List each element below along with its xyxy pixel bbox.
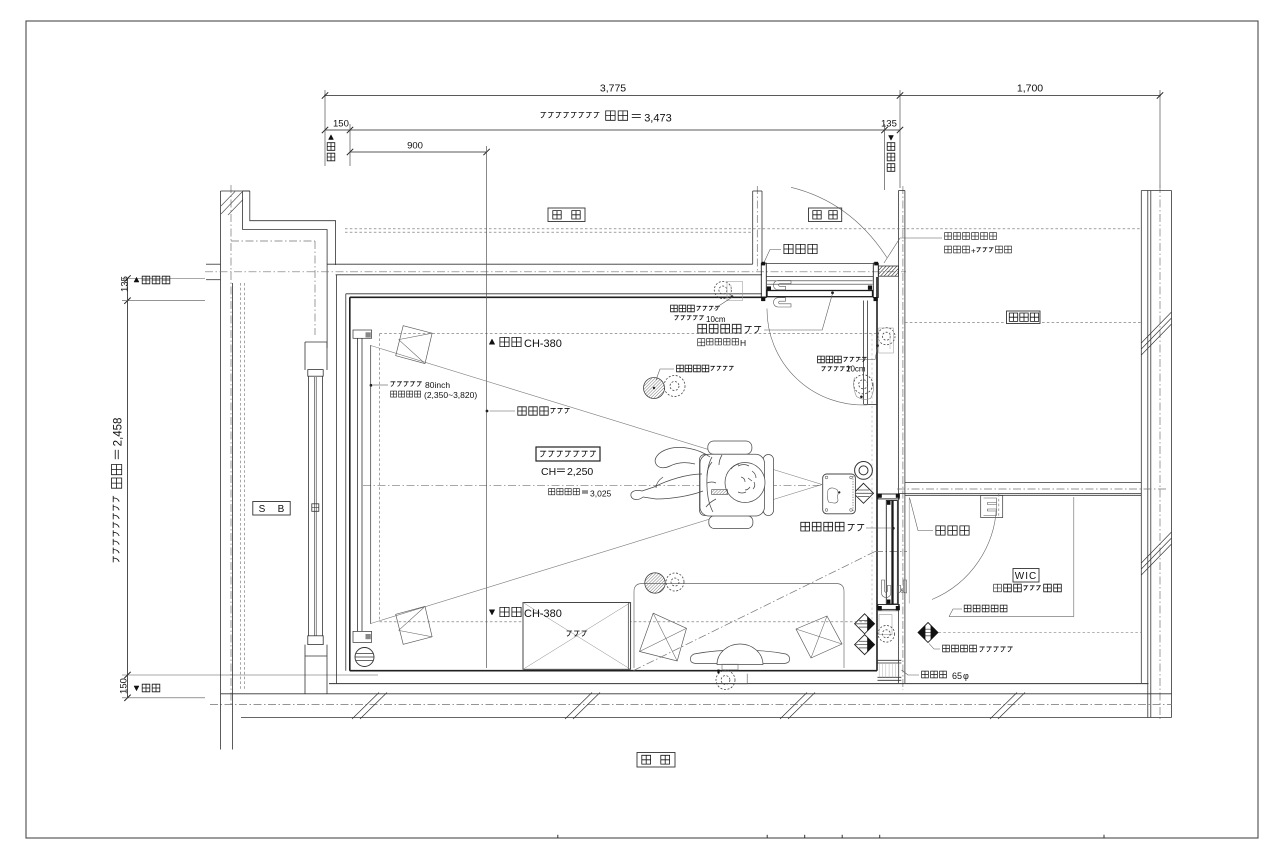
svg-text:135: 135 (881, 119, 897, 130)
svg-text:3,775: 3,775 (600, 83, 626, 95)
svg-text:150: 150 (333, 119, 349, 130)
svg-text:CH-380: CH-380 (524, 338, 562, 350)
svg-text:3,473: 3,473 (644, 113, 672, 125)
svg-text:+: + (971, 247, 976, 256)
svg-text:3,025: 3,025 (590, 489, 612, 499)
svg-text:2,458: 2,458 (113, 418, 125, 447)
svg-text:10cm: 10cm (706, 315, 726, 324)
svg-text:H: H (740, 338, 746, 348)
svg-text:135: 135 (120, 276, 131, 292)
svg-text:S: S (259, 504, 266, 515)
svg-text:2,250: 2,250 (567, 466, 593, 478)
svg-text:(2,350~3,820): (2,350~3,820) (424, 390, 477, 400)
svg-text:1,700: 1,700 (1017, 83, 1043, 95)
svg-text:B: B (278, 504, 285, 515)
svg-text:80inch: 80inch (425, 380, 450, 390)
svg-text:10cm: 10cm (846, 365, 866, 374)
svg-text:900: 900 (407, 141, 423, 152)
svg-text:φ: φ (963, 671, 969, 681)
svg-text:CH: CH (541, 466, 556, 478)
svg-text:WIC: WIC (1015, 571, 1037, 582)
svg-text:CH-380: CH-380 (524, 608, 562, 620)
svg-text:65: 65 (952, 671, 962, 681)
svg-text:150: 150 (119, 678, 130, 694)
